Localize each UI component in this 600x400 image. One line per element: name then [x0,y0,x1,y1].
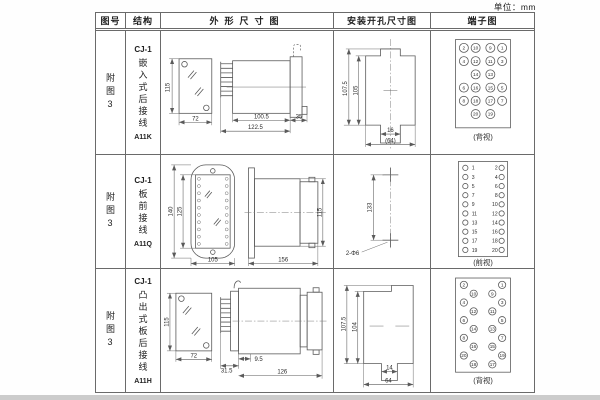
terminal-diagram-cell: 2 10 4 12 6 14 8 16 20 18 1 9 3 11 5 13 … [431,269,534,392]
structure-name: 板前接线 [137,189,150,237]
hatch-mark [214,218,221,225]
terminal-number: 6 [495,184,498,190]
dim-label-front-height: 115 [166,82,172,92]
terminal-number: 2 [463,282,466,287]
terminal-diagram-a11q: 1 3 5 7 9 11 13 15 17 19 2 4 6 8 10 12 1… [431,155,534,268]
terminal-number: 16 [473,85,479,90]
table-row: 附图3 CJ-1 板前接线 A11Q [96,155,534,269]
table-header-row: 图号 结构 外形尺寸图 安装开孔尺寸图 端子图 [96,13,534,31]
terminal-number: 7 [501,335,504,340]
terminal-number: 2 [495,166,498,172]
dim-label-total-len: 122.5 [248,125,264,131]
terminal-number: 5 [501,85,504,90]
model-code: A11Q [134,241,152,248]
terminal-number: 10 [492,202,498,208]
terminal-dot-columns [197,177,228,245]
header-fig-no: 图号 [96,13,126,28]
dim-label-flange: 35 [296,114,303,120]
terminal-number: 20 [492,248,498,254]
dim-label-offset: 9.5 [254,357,263,363]
install-drawing-cell: 133 2-Φ6 [334,155,431,268]
model-label: CJ-1 [134,277,151,286]
dim-label-overall: 64 [385,378,392,384]
terminal-number: 3 [472,175,475,181]
install-drawing-a11k: 107.5 105 16 (64) [334,31,430,154]
view-caption: (背视) [473,133,493,142]
structure-cell: CJ-1 嵌入式后接线 A11K [126,31,161,154]
dim-label-inner-height: 125 [178,206,184,217]
install-drawing-a11q: 133 2-Φ6 [334,155,430,268]
dim-label-hole-dist: 133 [368,202,374,213]
terminal-number: 14 [471,327,477,332]
latch-hook [234,281,240,288]
dim-label-front-height: 115 [164,317,170,327]
dim-label-overall: (64) [385,138,396,144]
terminal-number: 19 [488,112,494,117]
hole-cross [382,168,398,182]
terminal-number: 18 [471,362,477,367]
terminal-number: 19 [472,248,478,254]
header-structure: 结构 [126,13,161,28]
outline-drawing-cell: 140 125 105 156 115 [161,155,334,268]
terminal-number: 6 [463,318,466,323]
outline-drawing-cell: 115 72 100.5 35 122.5 [161,31,334,154]
terminal-number: 9 [489,46,492,51]
terminal-diagram-cell: 1 3 5 7 9 11 13 15 17 19 2 4 6 8 10 12 1… [431,155,534,268]
terminal-number: 15 [488,85,494,90]
terminal-number: 13 [472,220,478,226]
outline-drawing-cell: 115 72 31.5 9.5 [161,269,334,392]
terminal-number: 16 [471,344,477,349]
terminal-number: 11 [488,59,493,64]
structure-cell: CJ-1 板前接线 A11Q [126,155,161,268]
terminal-number: 4 [495,175,498,181]
terminal-number: 8 [463,335,466,340]
terminal-number: 17 [490,362,496,367]
spec-table: 图号 结构 外形尺寸图 安装开孔尺寸图 端子图 附图3 CJ-1 嵌入式后接线 … [95,12,535,393]
dim-label-front-width: 72 [190,353,197,359]
header-outline-dims: 外形尺寸图 [161,13,334,28]
outline-drawing-a11q: 140 125 105 156 115 [161,155,333,268]
terminal-number: 12 [492,211,498,217]
terminal-number: 20 [461,353,467,358]
structure-name: 嵌入式后接线 [137,58,150,130]
terminal-number: 4 [463,59,466,64]
dim-label-pin-len: 31.5 [221,369,233,375]
terminal-number: 15 [472,230,478,236]
model-code: A11H [134,378,152,385]
terminal-number: 14 [473,72,479,77]
install-drawing-a11h: 107.5 104 14 64 [334,269,430,392]
terminal-number: 11 [490,309,495,314]
model-code: A11K [134,134,152,141]
structure-name: 凸出式板后接线 [137,290,150,374]
terminal-number: 4 [463,300,466,305]
terminal-number: 16 [492,230,498,236]
terminal-number: 7 [472,193,475,199]
terminal-number: 5 [472,184,475,190]
terminal-pins [221,64,233,96]
terminal-number: 10 [471,291,477,296]
terminal-number: 17 [488,99,494,104]
terminal-pins [221,299,231,331]
hatch-mark [183,306,191,314]
install-drawing-cell: 107.5 104 14 64 [334,269,431,392]
dim-label-v-outer: 107.5 [341,316,347,332]
model-label: CJ-1 [134,45,151,54]
terminal-number: 3 [501,300,504,305]
dim-label-side-height: 115 [317,207,323,217]
hole-cross [382,233,398,247]
dim-label-body-len: 126 [277,370,288,376]
fig-no-cell: 附图3 [96,269,126,392]
terminal-number: 9 [472,202,475,208]
outline-drawing-a11k: 115 72 100.5 35 122.5 [161,31,333,154]
terminal-number: 11 [472,211,477,217]
terminal-diagram-a11k: 2 4 6 8 10 12 14 16 18 20 9 11 13 15 17 … [431,31,534,154]
terminal-number: 12 [471,309,477,314]
page: { "unit_label": "单位：mm", "table": { "hea… [0,0,600,400]
dim-label-slot: 16 [387,128,394,134]
view-caption: (背视) [473,376,493,385]
dim-label-slot: 14 [386,366,393,372]
terminal-number: 1 [472,166,475,172]
terminal-number: 15 [490,344,496,349]
terminal-number: 13 [488,72,494,77]
scan-edge-strip [0,395,600,400]
terminal-number: 12 [473,59,479,64]
terminal-number: 2 [463,46,466,51]
header-terminal: 端子图 [431,13,534,28]
terminal-number: 1 [501,46,504,51]
terminal-number: 18 [492,239,498,245]
hatch-mark [205,191,212,198]
terminal-number: 7 [501,99,504,104]
terminal-number: 13 [490,327,496,332]
terminal-number: 10 [473,46,479,51]
fig-no-label: 附图3 [104,73,117,113]
terminal-number: 8 [495,193,498,199]
install-drawing-cell: 107.5 105 16 (64) [334,31,431,154]
terminal-number: 8 [463,99,466,104]
terminal-number: 18 [473,99,479,104]
dim-label-body-len: 100.5 [254,114,270,120]
dim-label-v-inner: 105 [353,85,359,96]
hatch-mark [192,327,200,335]
fig-no-label: 附图3 [104,311,117,351]
latch-phantom [294,44,301,56]
fig-no-cell: 附图3 [96,155,126,268]
hatch-mark [195,88,203,96]
dim-label-front-width: 105 [208,258,219,264]
structure-cell: CJ-1 凸出式板后接线 A11H [126,269,161,392]
dim-label-v-inner: 104 [352,321,358,332]
terminal-number: 1 [501,282,504,287]
terminal-number: 3 [501,59,504,64]
dim-label-v-outer: 107.5 [343,80,349,96]
terminal-number: 14 [492,220,498,226]
terminal-number: 20 [473,112,479,117]
fig-no-cell: 附图3 [96,31,126,154]
header-install-dims: 安装开孔尺寸图 [334,13,431,28]
terminal-diagram-cell: 2 4 6 8 10 12 14 16 18 20 9 11 13 15 17 … [431,31,534,154]
hole-spec-label: 2-Φ6 [346,251,360,257]
fig-no-label: 附图3 [104,192,117,232]
dim-label-front-height: 140 [169,206,175,217]
terminal-number: 6 [463,85,466,90]
dim-label-body-len: 156 [278,258,289,264]
terminal-number: 19 [500,353,506,358]
dim-label-front-width: 72 [192,116,199,122]
terminal-number: 9 [491,291,494,296]
outline-drawing-a11h: 115 72 31.5 9.5 [161,269,333,392]
table-row: 附图3 CJ-1 凸出式板后接线 A11H [96,269,534,392]
terminal-diagram-a11h: 2 10 4 12 6 14 8 16 20 18 1 9 3 11 5 13 … [431,269,534,392]
terminal-number: 5 [501,318,504,323]
view-caption: (前视) [473,258,493,267]
hatch-mark [188,71,196,79]
table-row: 附图3 CJ-1 嵌入式后接线 A11K [96,31,534,155]
terminal-number: 17 [472,239,478,245]
model-label: CJ-1 [134,176,151,185]
